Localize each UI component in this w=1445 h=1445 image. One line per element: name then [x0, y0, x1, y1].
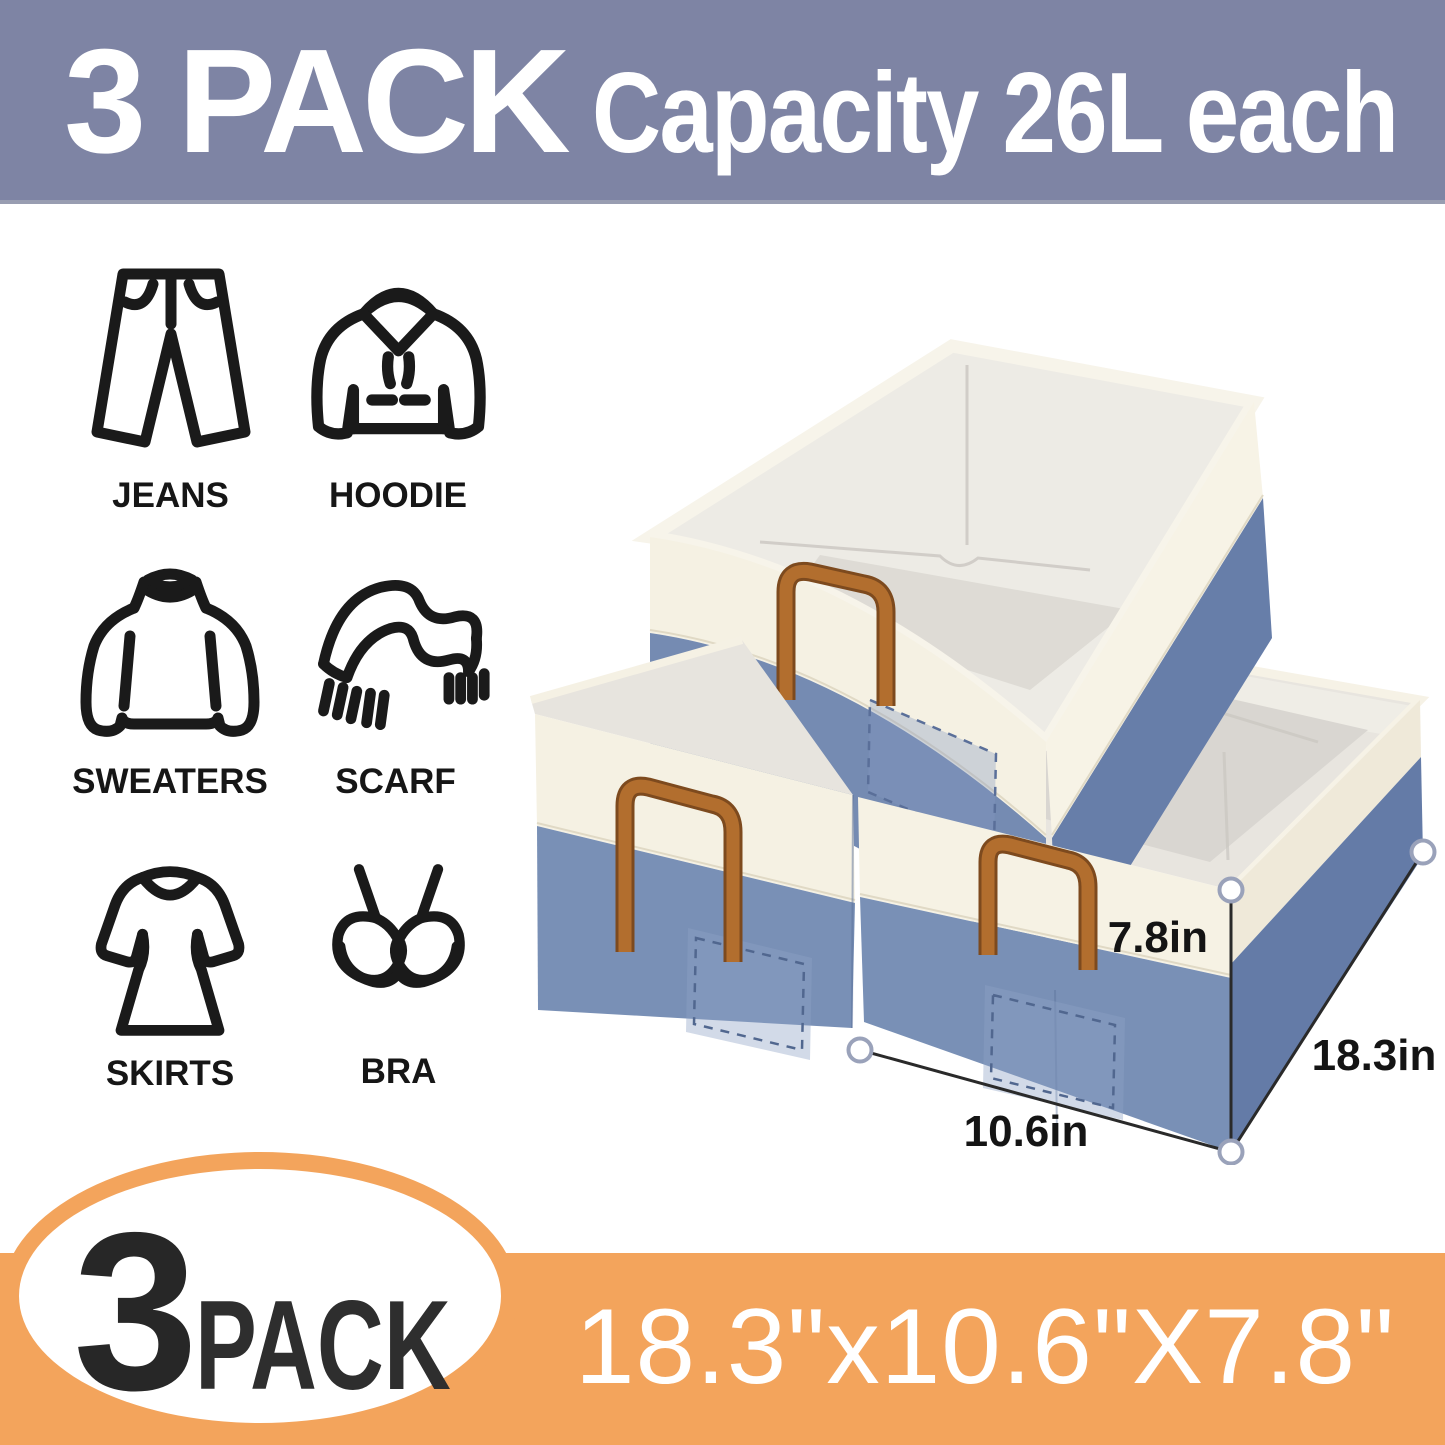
category-jeans: JEANS — [63, 250, 278, 516]
top-banner: 3 PACKCapacity 26L each — [0, 0, 1445, 204]
bra-icon — [296, 858, 501, 1046]
banner-capacity-label: Capacity 26L each — [592, 12, 1397, 216]
dimension-width-label: 10.6in — [964, 1107, 1089, 1156]
product-size-label: 18.3"x10.6"X7.8" — [525, 1253, 1445, 1445]
category-scarf: SCARF — [283, 560, 508, 802]
dimension-height-label: 7.8in — [1108, 913, 1208, 962]
category-label: SCARF — [283, 762, 508, 802]
pack-count-text: 3PACK — [73, 1206, 546, 1445]
category-hoodie: HOODIE — [288, 252, 508, 516]
sweater-icon — [65, 556, 275, 756]
dress-icon — [70, 852, 270, 1048]
jeans-icon — [71, 250, 271, 470]
category-label: HOODIE — [288, 476, 508, 516]
pack-count-word: PACK — [195, 1240, 451, 1445]
category-skirts: SKIRTS — [60, 852, 280, 1094]
category-label: SWEATERS — [55, 762, 285, 802]
category-label: JEANS — [63, 476, 278, 516]
category-label: BRA — [286, 1052, 511, 1092]
category-bra: BRA — [286, 858, 511, 1092]
hoodie-icon — [296, 252, 501, 470]
banner-pack-label: 3 PACK — [64, 19, 566, 184]
pack-count-number: 3 — [73, 1185, 198, 1437]
storage-bins-photo: 7.8in 18.3in 10.6in — [520, 330, 1445, 1165]
scarf-icon — [291, 560, 501, 756]
category-sweaters: SWEATERS — [55, 556, 285, 802]
category-label: SKIRTS — [60, 1054, 280, 1094]
product-infographic: 3 PACKCapacity 26L each JEANS — [0, 0, 1445, 1445]
pack-count-badge: 3PACK — [2, 1152, 518, 1440]
dimension-depth-label: 18.3in — [1312, 1031, 1437, 1080]
